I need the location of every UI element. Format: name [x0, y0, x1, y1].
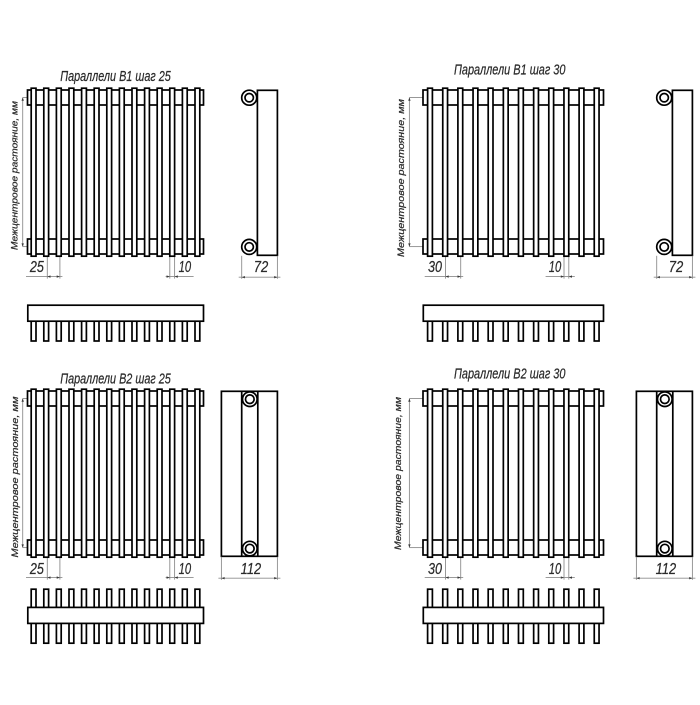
svg-text:10: 10 [549, 259, 562, 276]
svg-text:10: 10 [179, 561, 192, 578]
svg-text:112: 112 [241, 561, 262, 578]
svg-text:25: 25 [29, 561, 44, 578]
svg-text:Межцентровое растояние, мм: Межцентровое растояние, мм [393, 396, 404, 550]
svg-text:72: 72 [669, 259, 684, 276]
svg-text:Межцентровое растояние, мм: Межцентровое растояние, мм [9, 100, 20, 250]
svg-text:Параллели В1 шаг 30: Параллели В1 шаг 30 [454, 63, 566, 79]
svg-text:30: 30 [428, 259, 442, 276]
svg-text:Межцентровое растояние, мм: Межцентровое растояние, мм [10, 396, 21, 558]
svg-text:Межцентровое растояние, мм: Межцентровое растояние, мм [396, 98, 407, 257]
svg-text:Параллели В2 шаг 30: Параллели В2 шаг 30 [454, 367, 566, 383]
svg-text:Параллели В1 шаг 25: Параллели В1 шаг 25 [60, 69, 171, 85]
svg-text:10: 10 [549, 561, 562, 578]
svg-text:112: 112 [656, 561, 677, 578]
svg-text:Параллели В2 шаг 25: Параллели В2 шаг 25 [60, 372, 171, 388]
svg-text:25: 25 [29, 259, 44, 276]
svg-text:30: 30 [428, 561, 442, 578]
svg-text:72: 72 [254, 259, 269, 276]
svg-text:10: 10 [179, 259, 192, 276]
